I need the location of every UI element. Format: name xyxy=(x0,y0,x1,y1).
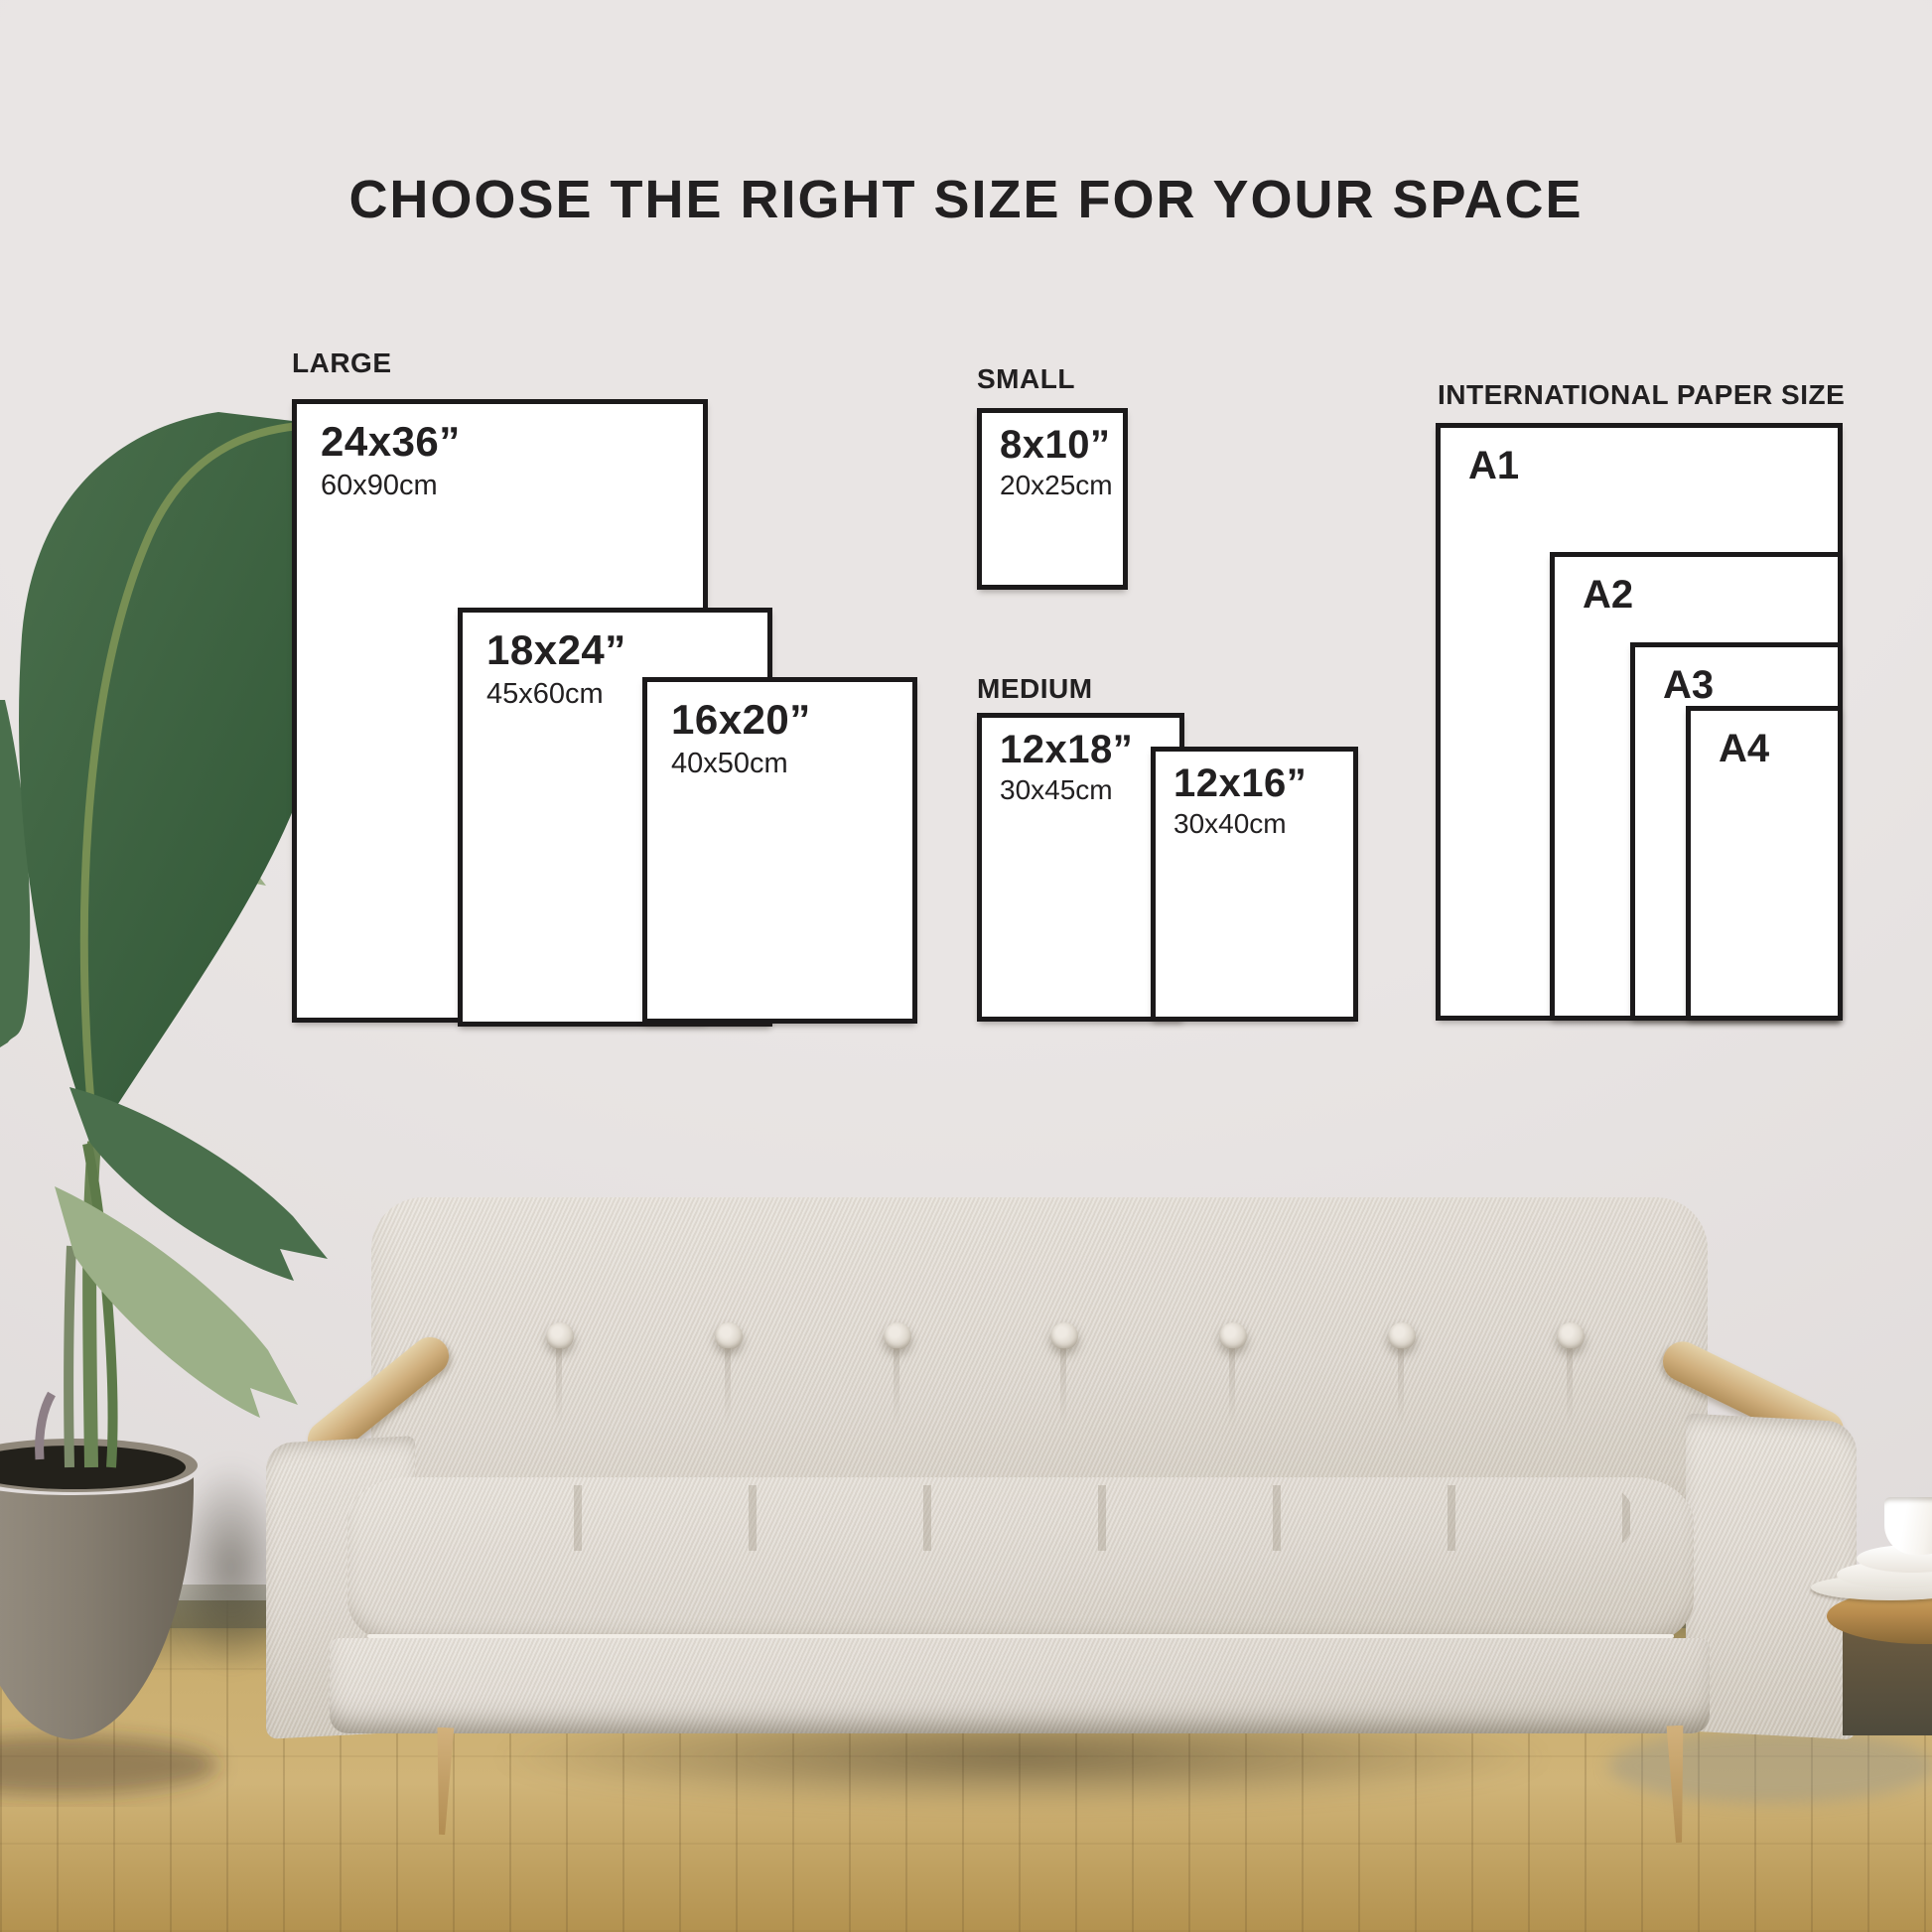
size-box-8x10: 8x10” 20x25cm xyxy=(977,408,1128,590)
size-guide-image: CHOOSE THE RIGHT SIZE FOR YOUR SPACE LAR… xyxy=(0,0,1932,1932)
tuft-button xyxy=(1219,1322,1247,1350)
page-title: CHOOSE THE RIGHT SIZE FOR YOUR SPACE xyxy=(0,171,1932,228)
sofa-seat-cushion xyxy=(347,1477,1694,1646)
size-box-a4: A4 xyxy=(1686,706,1843,1021)
size-cm-label: 20x25cm xyxy=(1000,470,1123,501)
tuft-button xyxy=(1388,1322,1416,1350)
tuft-button xyxy=(715,1322,743,1350)
size-inches-label: 18x24” xyxy=(486,626,767,674)
group-label-small: SMALL xyxy=(977,363,1075,395)
paper-size-label: A4 xyxy=(1719,727,1838,771)
size-inches-label: 24x36” xyxy=(321,418,703,466)
size-box-12x16: 12x16” 30x40cm xyxy=(1151,747,1358,1022)
group-label-medium: MEDIUM xyxy=(977,673,1093,705)
size-cm-label: 60x90cm xyxy=(321,470,703,502)
plant-pot xyxy=(0,1477,194,1739)
group-label-international: INTERNATIONAL PAPER SIZE xyxy=(1438,379,1845,411)
paper-size-label: A2 xyxy=(1583,573,1838,618)
size-cm-label: 30x40cm xyxy=(1173,808,1353,840)
size-box-16x20: 16x20” 40x50cm xyxy=(642,677,917,1024)
group-label-large: LARGE xyxy=(292,347,392,379)
size-cm-label: 40x50cm xyxy=(671,748,912,780)
tuft-button xyxy=(1557,1322,1585,1350)
size-inches-label: 8x10” xyxy=(1000,423,1123,468)
tuft-button xyxy=(546,1322,574,1350)
pot-shadow xyxy=(0,1735,218,1795)
size-inches-label: 12x16” xyxy=(1173,761,1353,806)
paper-size-label: A3 xyxy=(1663,663,1838,708)
paper-size-label: A1 xyxy=(1468,444,1838,488)
size-inches-label: 16x20” xyxy=(671,696,912,744)
tuft-button xyxy=(1050,1322,1078,1350)
tuft-button xyxy=(884,1322,911,1350)
plant-stem xyxy=(69,1246,71,1467)
side-table xyxy=(1813,1489,1932,1737)
sofa-base xyxy=(330,1638,1710,1733)
